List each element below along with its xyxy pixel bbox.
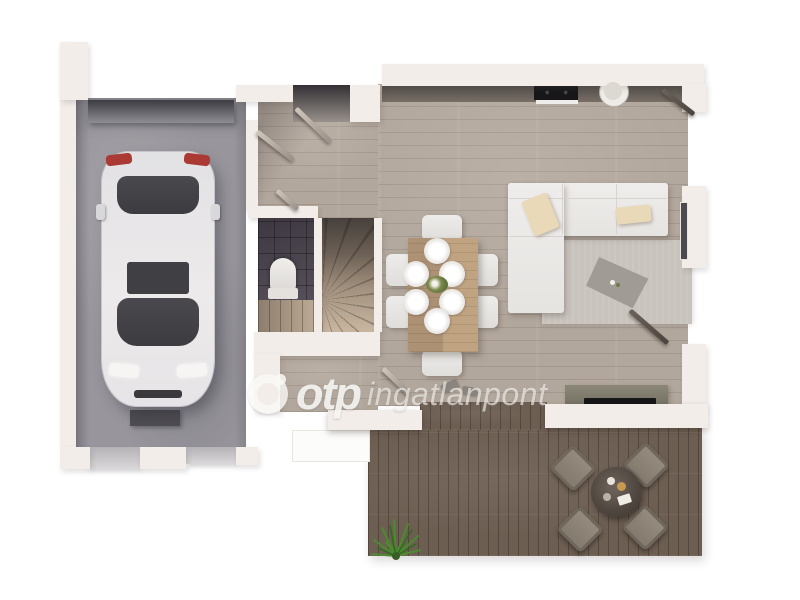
- cooktop: [534, 85, 578, 100]
- car-mirror-left: [96, 204, 105, 220]
- coffee-table-flower-leaf: [616, 283, 620, 287]
- window: [680, 202, 688, 260]
- wall-front: [236, 85, 294, 102]
- exterior-step-pad: [292, 430, 370, 462]
- car-sunroof: [127, 262, 189, 294]
- car-top-view: [102, 152, 216, 408]
- coffee-table-flower: [610, 280, 615, 285]
- wall-garage-bottom: [60, 447, 90, 469]
- car-headlight-left: [108, 363, 139, 379]
- sofa-seam: [562, 184, 563, 234]
- wall-left: [60, 42, 76, 447]
- otp-logo-dot-icon: [275, 374, 286, 385]
- car-front-grille: [134, 390, 182, 398]
- car-headlight-right: [176, 363, 207, 379]
- patio-table-item: [607, 477, 615, 485]
- wall-hall-top-right: [350, 85, 380, 122]
- staircase-lower-run: [258, 300, 322, 332]
- wall-top-left-pillar: [60, 42, 88, 100]
- kitchen-cabinet-front: [536, 100, 578, 104]
- patio-table-item: [603, 493, 611, 501]
- garage-door-apron: [88, 447, 140, 469]
- car-mirror-right: [211, 204, 220, 220]
- watermark-suffix: ingatlanpont: [367, 376, 547, 413]
- plate: [424, 238, 450, 264]
- sofa-pillow: [615, 204, 652, 225]
- wall-wc-top: [248, 206, 318, 218]
- plate: [424, 308, 450, 334]
- wall-right-lower: [682, 344, 706, 408]
- toilet-tank: [268, 288, 298, 299]
- staircase-winder: [322, 218, 376, 332]
- kitchen-counter: [382, 84, 684, 102]
- watermark-brand: otp: [296, 368, 360, 420]
- wall-wc-stairs: [314, 218, 322, 332]
- patio-table-item: [617, 482, 626, 491]
- garage-workbench: [88, 100, 234, 123]
- floor-plan-render: otp ingatlanpont: [0, 0, 800, 600]
- kitchen-sink-basin: [604, 82, 622, 100]
- wall-garage-bottom: [236, 447, 258, 465]
- wall-stairs-right: [374, 218, 382, 332]
- wall-bottom-right: [545, 404, 708, 428]
- garage-door-apron: [186, 447, 236, 464]
- car-windshield: [117, 298, 199, 346]
- garage-floor-mat: [130, 410, 180, 426]
- watermark: otp ingatlanpont: [248, 368, 547, 420]
- car-rear-window: [117, 176, 199, 214]
- table-centerpiece: [426, 276, 448, 293]
- patio-table: [591, 467, 641, 517]
- wall-garage-bottom: [140, 447, 186, 469]
- otp-ring-logo-icon: [248, 374, 288, 414]
- wall-living-top: [382, 64, 704, 86]
- wall-below-stairs: [254, 332, 380, 356]
- plate: [403, 289, 429, 315]
- ornamental-grass-plant: [368, 512, 424, 562]
